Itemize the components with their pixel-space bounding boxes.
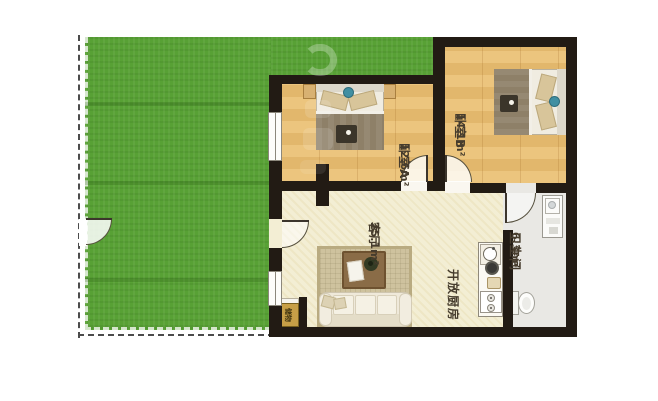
- wall: [269, 75, 445, 84]
- garden-boundary-dashed-bottom: [78, 334, 274, 336]
- sofa-back: [321, 314, 410, 326]
- wall: [433, 37, 577, 47]
- lawn-seam: [85, 102, 271, 106]
- bedroom-b-area: 14.1m²: [453, 113, 467, 156]
- washbasin-icon: [542, 195, 563, 238]
- wall: [269, 248, 282, 271]
- bedroom-a-area: 12.6m²: [397, 143, 411, 186]
- bathroom-area: 6.3m²: [508, 232, 522, 268]
- wall: [269, 327, 577, 337]
- wall: [427, 181, 445, 191]
- wall: [470, 183, 506, 193]
- faucet-icon: [492, 247, 495, 250]
- window-icon: [268, 112, 282, 161]
- cutting-board-icon: [487, 277, 501, 289]
- door-threshold: [445, 181, 470, 193]
- wall: [536, 183, 566, 193]
- door-leaf: [505, 193, 507, 223]
- door-leaf: [282, 220, 309, 222]
- sink-icon: [483, 247, 497, 261]
- bed-tray-icon: [336, 125, 357, 143]
- wall: [433, 37, 445, 190]
- lawn-strip-icon: [271, 37, 433, 77]
- sofa-pillow: [333, 297, 347, 310]
- garden-boundary-dashed-left: [78, 35, 80, 338]
- bed-cushion-icon: [549, 96, 560, 107]
- wall: [299, 297, 307, 331]
- window-icon: [268, 271, 282, 306]
- toilet-icon: [518, 292, 535, 314]
- burner-icon: [487, 294, 495, 302]
- sofa-armrest: [399, 293, 412, 326]
- burner-icon: [487, 304, 495, 312]
- watermark-blob: [303, 128, 333, 150]
- wall: [566, 37, 577, 337]
- sofa-cushion: [355, 295, 376, 315]
- living-room-area: 25.1m²: [367, 222, 381, 265]
- watermark-blob: [305, 100, 331, 118]
- sofa-cushion: [377, 295, 397, 315]
- kitchen-name: 开放厨房: [445, 269, 460, 321]
- lawn-seam: [85, 181, 271, 185]
- door-leaf: [445, 155, 447, 182]
- bed-cushion-icon: [343, 87, 354, 98]
- table-paper: [347, 260, 365, 282]
- garden-gate-leaf: [86, 218, 112, 220]
- nightstand-icon: [303, 84, 316, 99]
- nightstand-icon: [383, 84, 396, 99]
- bed-tray-icon: [500, 95, 518, 112]
- lawn-seam: [85, 278, 271, 282]
- stove-icon: [485, 261, 499, 275]
- door-threshold: [506, 183, 536, 193]
- wall: [269, 181, 401, 191]
- door-leaf: [426, 155, 428, 182]
- room-label-storage: 储物: [283, 308, 293, 322]
- door-threshold: [269, 219, 282, 248]
- floor-plan: 卧室A 12.6m² 卧室B 14.1m² 客厅 25.1m² 开放厨房 卫生间…: [0, 0, 658, 401]
- watermark-icon: [303, 44, 337, 76]
- watermark-blob: [300, 160, 326, 174]
